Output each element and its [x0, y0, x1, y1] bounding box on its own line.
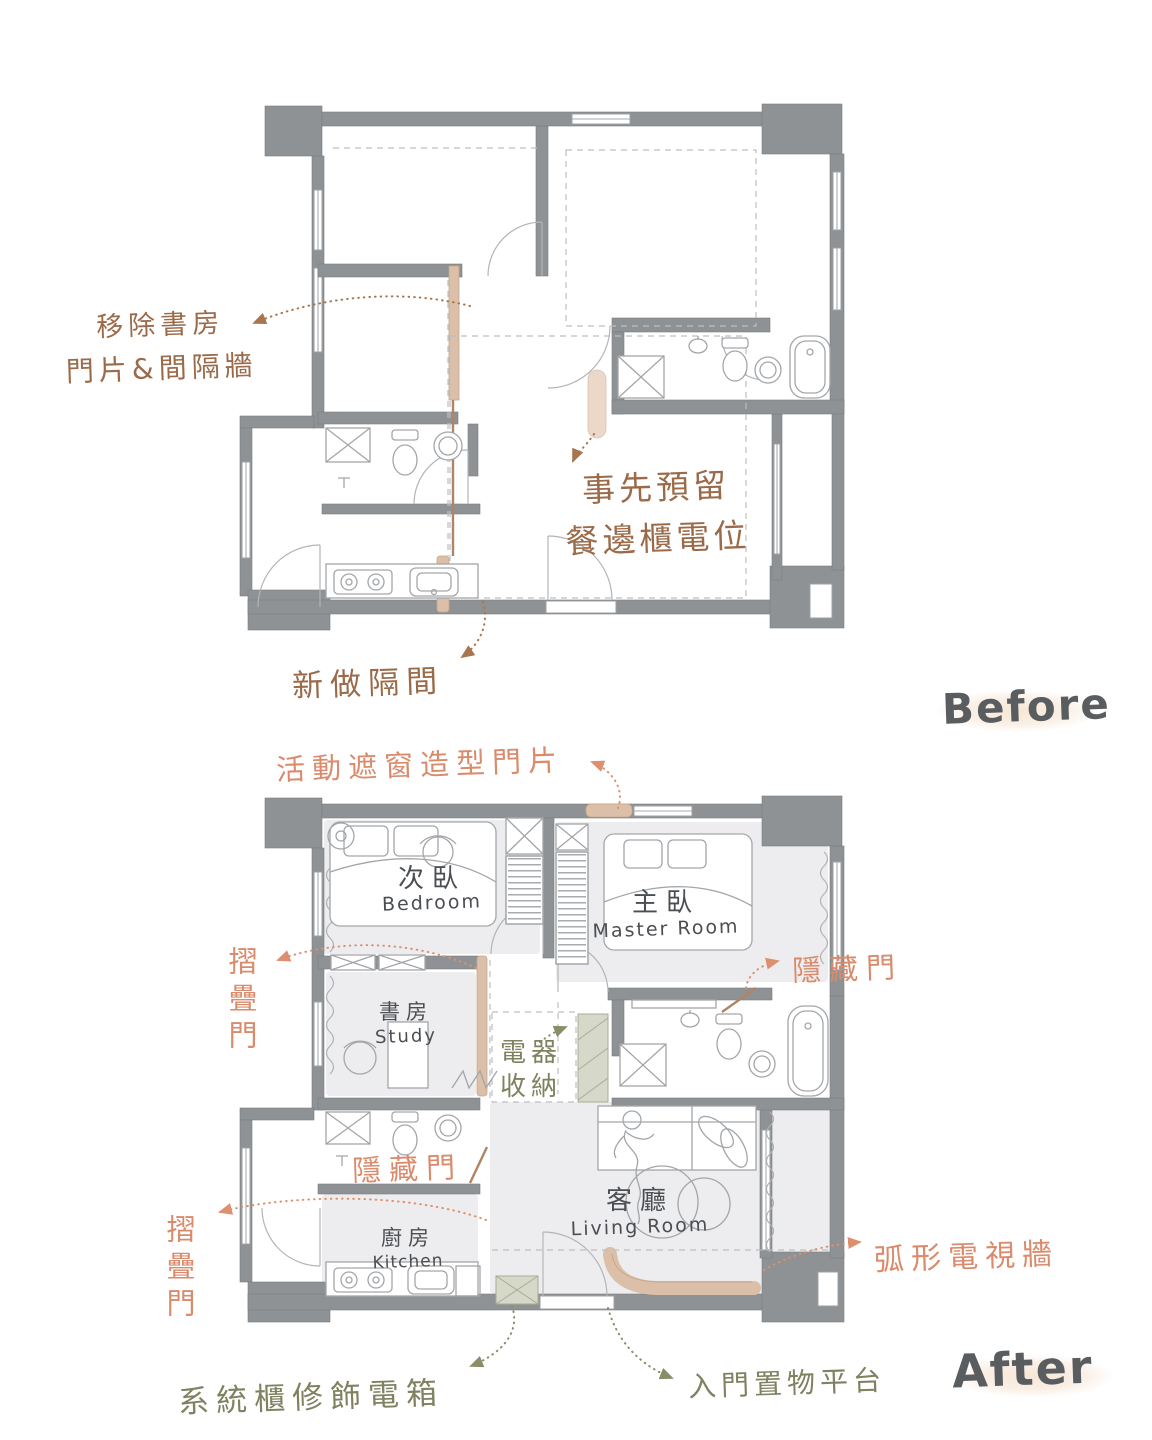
shaft-icon [326, 1112, 370, 1144]
annotation-line: 門片&間隔牆 [48, 343, 275, 394]
reserved-outlet-highlight [588, 370, 606, 438]
wardrobe-icon [506, 818, 543, 924]
before-floor-plan [240, 104, 844, 657]
annotation-arrow [573, 434, 594, 461]
annotation-remove-study: 移除書房 門片&間隔牆 [47, 301, 276, 394]
room-label-bedroom-zh: 次臥 [370, 858, 494, 895]
column [265, 106, 322, 156]
room-label-kitchen-en: Kitchen [364, 1250, 453, 1273]
column [762, 104, 842, 154]
shaft-icon [326, 428, 370, 462]
annotation-new-partition: 新做隔間 [291, 655, 444, 705]
column [762, 796, 842, 846]
annotation-line: 收納 [488, 1070, 574, 1104]
annotation-line: 餐邊櫃電位 [538, 509, 778, 568]
washbasin-icon [755, 357, 781, 383]
entry-platform-cabinet [496, 1276, 538, 1304]
bathtub-icon [788, 1006, 828, 1096]
shaft-icon [620, 1044, 666, 1086]
hidden-door-highlight [470, 1147, 487, 1183]
toilet-icon [716, 1014, 742, 1059]
washbasin-icon [749, 1051, 775, 1077]
wardrobe-icon [556, 824, 588, 964]
kitchen-counter [326, 564, 478, 598]
after-label: After [951, 1340, 1094, 1399]
sink-icon [435, 1115, 461, 1141]
annotation-arrow [254, 296, 470, 323]
annotation-hidden-door-right: 隱藏門 [791, 944, 903, 990]
bathtub-icon [790, 336, 830, 398]
annotation-arrow [608, 1308, 672, 1378]
annotation-system-cabinet: 系統櫃修飾電箱 [177, 1367, 444, 1421]
room-label-study-zh: 書房 [370, 996, 442, 1026]
annotation-folding-door-lower: 摺疊門 [158, 1214, 200, 1325]
sink-icon [434, 432, 462, 460]
annotation-reserve-outlet: 事先預留 餐邊櫃電位 [536, 458, 777, 569]
annotation-line: 電器 [488, 1036, 574, 1070]
vanity-counter [632, 1000, 716, 1008]
sink-icon [689, 336, 707, 353]
toilet-icon [722, 338, 748, 381]
annotation-hidden-door-left: 隱藏門 [351, 1144, 463, 1190]
faucet-icon [338, 478, 350, 488]
annotation-arrow [592, 762, 620, 808]
annotation-line: 事先預留 [536, 458, 776, 517]
annotation-appliance-storage: 電器 收納 [488, 1036, 574, 1105]
column [265, 798, 322, 848]
floor-plan-page: 移除書房 門片&間隔牆 事先預留 餐邊櫃電位 新做隔間 Before 活動遮窗造… [0, 0, 1152, 1440]
toilet-icon [392, 430, 418, 475]
shaft-icon [618, 356, 664, 398]
appliance-cabinet [578, 1014, 608, 1102]
annotation-arrow [471, 1306, 514, 1366]
annotation-curved-tv-wall: 弧形電視牆 [873, 1229, 1059, 1279]
annotation-folding-door-upper: 摺疊門 [220, 946, 262, 1057]
room-label-master-zh: 主臥 [604, 882, 728, 919]
movable-screen-door-highlight [586, 804, 632, 817]
before-label: Before [941, 679, 1111, 734]
annotation-entry-platform: 入門置物平台 [687, 1359, 886, 1406]
room-label-living-zh: 客廳 [588, 1180, 692, 1217]
room-label-kitchen-zh: 廚房 [370, 1222, 446, 1252]
room-label-study-en: Study [366, 1025, 447, 1049]
sink-icon [681, 1010, 699, 1027]
faucet-icon [336, 1156, 348, 1166]
room-label-bedroom-en: Bedroom [368, 890, 497, 916]
